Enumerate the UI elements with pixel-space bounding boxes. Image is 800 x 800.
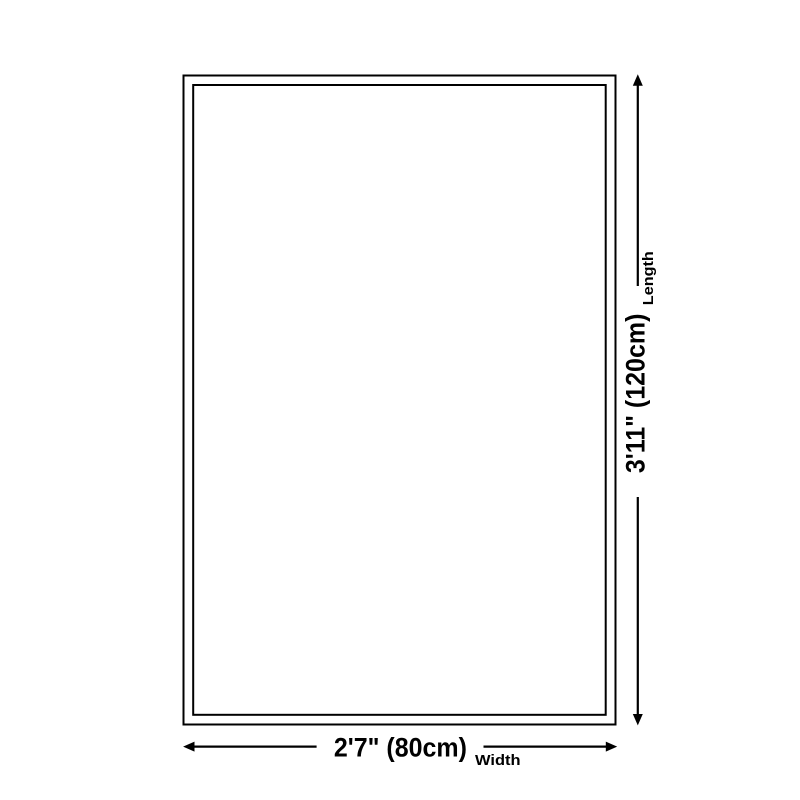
svg-text:3'11" (120cm): 3'11" (120cm) (620, 314, 650, 474)
svg-text:Length: Length (641, 251, 657, 305)
svg-text:Width: Width (475, 753, 521, 769)
svg-text:2'7" (80cm): 2'7" (80cm) (334, 733, 467, 763)
